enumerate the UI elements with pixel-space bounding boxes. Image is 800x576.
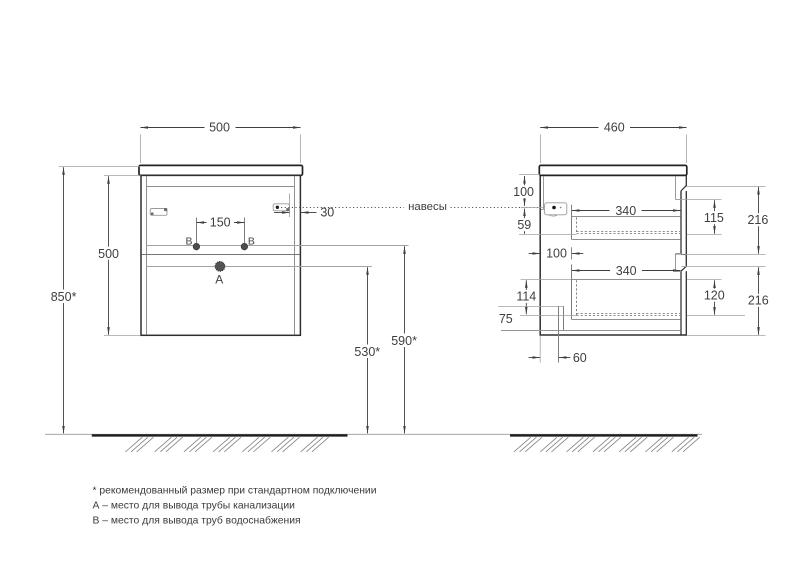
svg-text:навесы: навесы [408, 201, 447, 213]
svg-text:А – место для вывода трубы кан: А – место для вывода трубы канализации [93, 500, 296, 512]
svg-text:100: 100 [546, 246, 567, 260]
svg-text:В – место для вывода труб водо: В – место для вывода труб водоснабжения [93, 515, 301, 527]
svg-text:B: B [186, 236, 193, 247]
svg-text:120: 120 [704, 288, 725, 302]
svg-text:340: 340 [616, 264, 637, 278]
svg-text:850*: 850* [51, 290, 77, 304]
svg-text:150: 150 [210, 216, 231, 230]
svg-text:B: B [248, 236, 255, 247]
svg-text:* рекомендованный размер при с: * рекомендованный размер при стандартном… [93, 486, 377, 497]
svg-text:100: 100 [513, 185, 534, 199]
svg-text:500: 500 [98, 247, 119, 261]
svg-text:590*: 590* [391, 334, 417, 348]
svg-text:460: 460 [604, 120, 625, 134]
svg-text:340: 340 [615, 204, 636, 218]
svg-text:A: A [215, 272, 223, 286]
svg-text:114: 114 [516, 290, 536, 304]
svg-text:500: 500 [209, 120, 230, 134]
svg-text:216: 216 [747, 213, 768, 227]
svg-text:216: 216 [748, 294, 769, 308]
svg-text:530*: 530* [354, 345, 380, 359]
svg-text:115: 115 [704, 211, 724, 225]
svg-text:59: 59 [517, 218, 531, 232]
svg-text:60: 60 [573, 351, 587, 365]
svg-text:75: 75 [499, 312, 513, 326]
